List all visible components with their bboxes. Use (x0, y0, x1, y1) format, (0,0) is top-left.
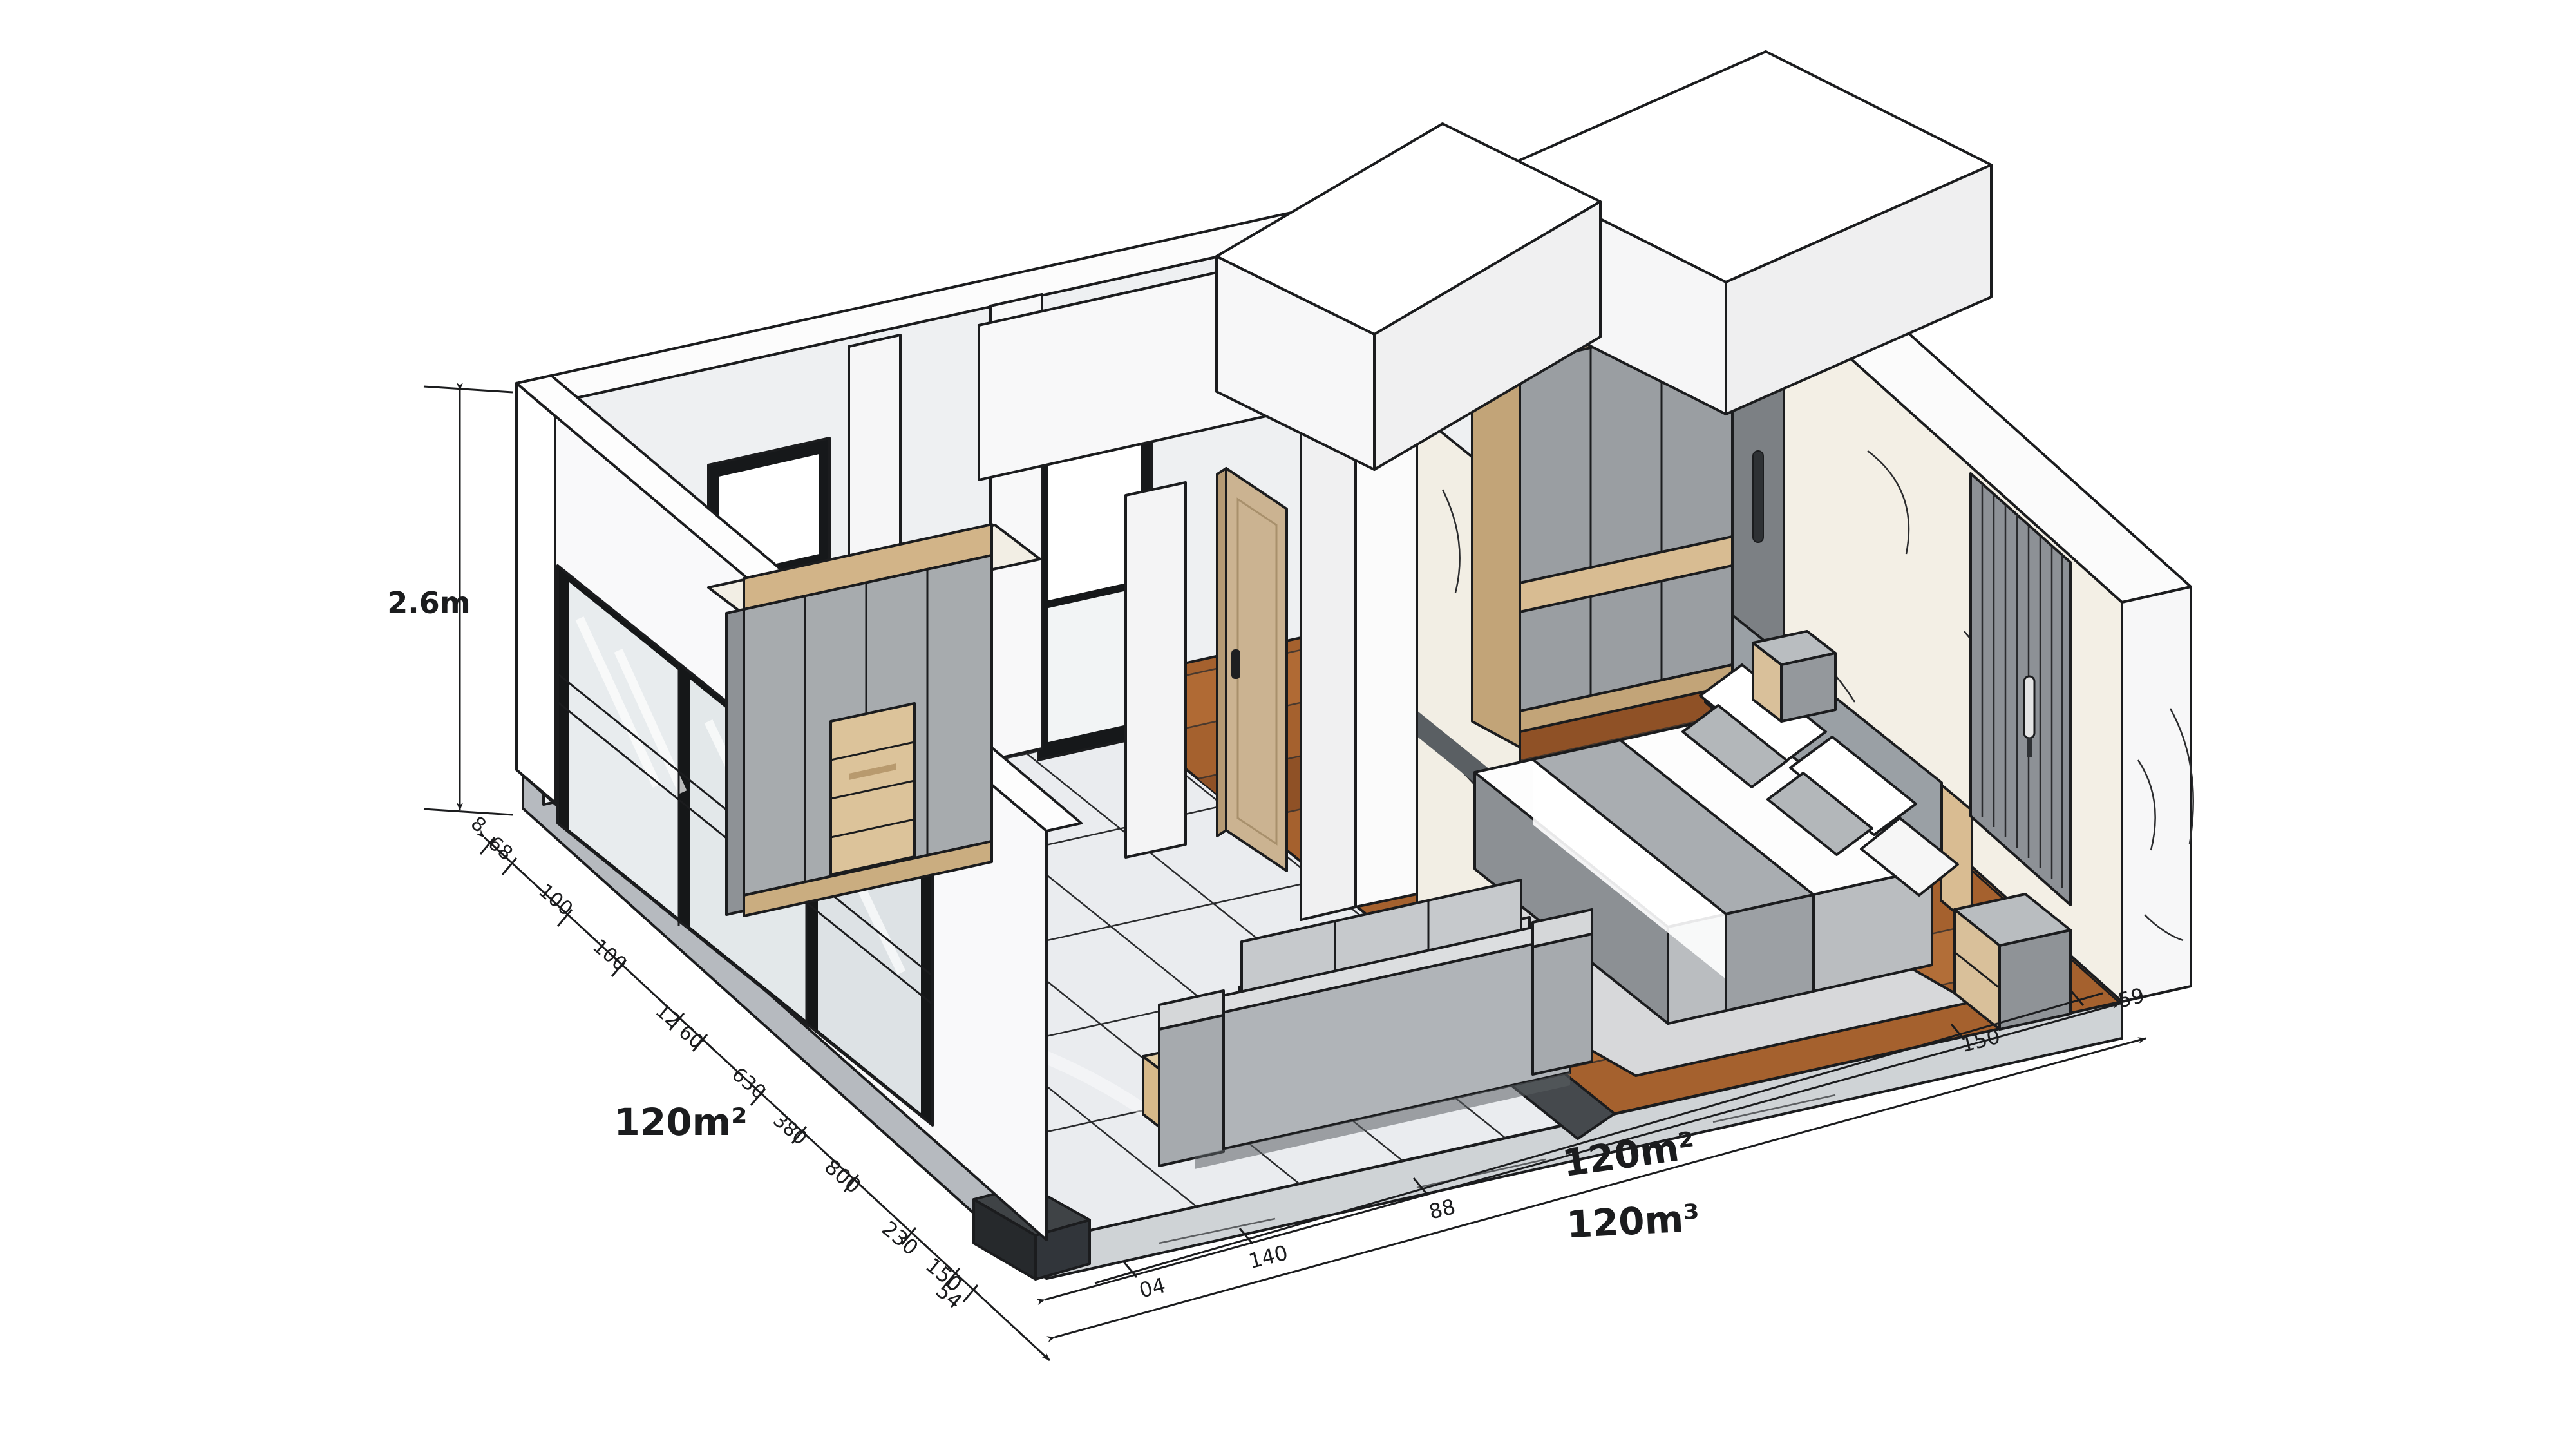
dim-height: 2.6m (387, 386, 513, 815)
dim-label: 04 (1137, 1273, 1168, 1303)
hall-door (1217, 468, 1287, 871)
living-wardrobe-side (726, 609, 744, 915)
dim-label: 100 (588, 935, 630, 976)
wardrobe-handle (1753, 451, 1763, 542)
dim-label: 100 (534, 880, 576, 921)
sofa-arm-left (1159, 1015, 1224, 1166)
door-handle (1231, 649, 1240, 679)
dim-label: 800 (820, 1154, 866, 1198)
facade-corner-post (516, 383, 555, 803)
dim-label: 8 (466, 812, 490, 837)
dim-label: 12 (651, 1000, 685, 1033)
height-label: 2.6m (387, 586, 470, 620)
door-frame-edge (1217, 468, 1226, 836)
dim-label: 88 (1426, 1194, 1458, 1224)
area-label-left: 120m² (614, 1100, 748, 1144)
dim-label: 68 (484, 832, 517, 865)
floorplan-svg: 2.6m 8 68 100 100 12 60 630 380 800 230 … (0, 0, 2576, 1448)
dim-label: 60 (674, 1021, 708, 1054)
sofa-arm-right (1533, 934, 1592, 1074)
dim-label: 140 (1246, 1241, 1290, 1274)
volume-label: 120m³ (1566, 1196, 1701, 1247)
dim-label: 230 (877, 1216, 923, 1260)
nightstand-left (1753, 631, 1835, 721)
dim-label: 380 (768, 1109, 811, 1150)
living-wardrobe (708, 524, 1040, 916)
isometric-floorplan-scene: 2.6m 8 68 100 100 12 60 630 380 800 230 … (0, 0, 2576, 1448)
